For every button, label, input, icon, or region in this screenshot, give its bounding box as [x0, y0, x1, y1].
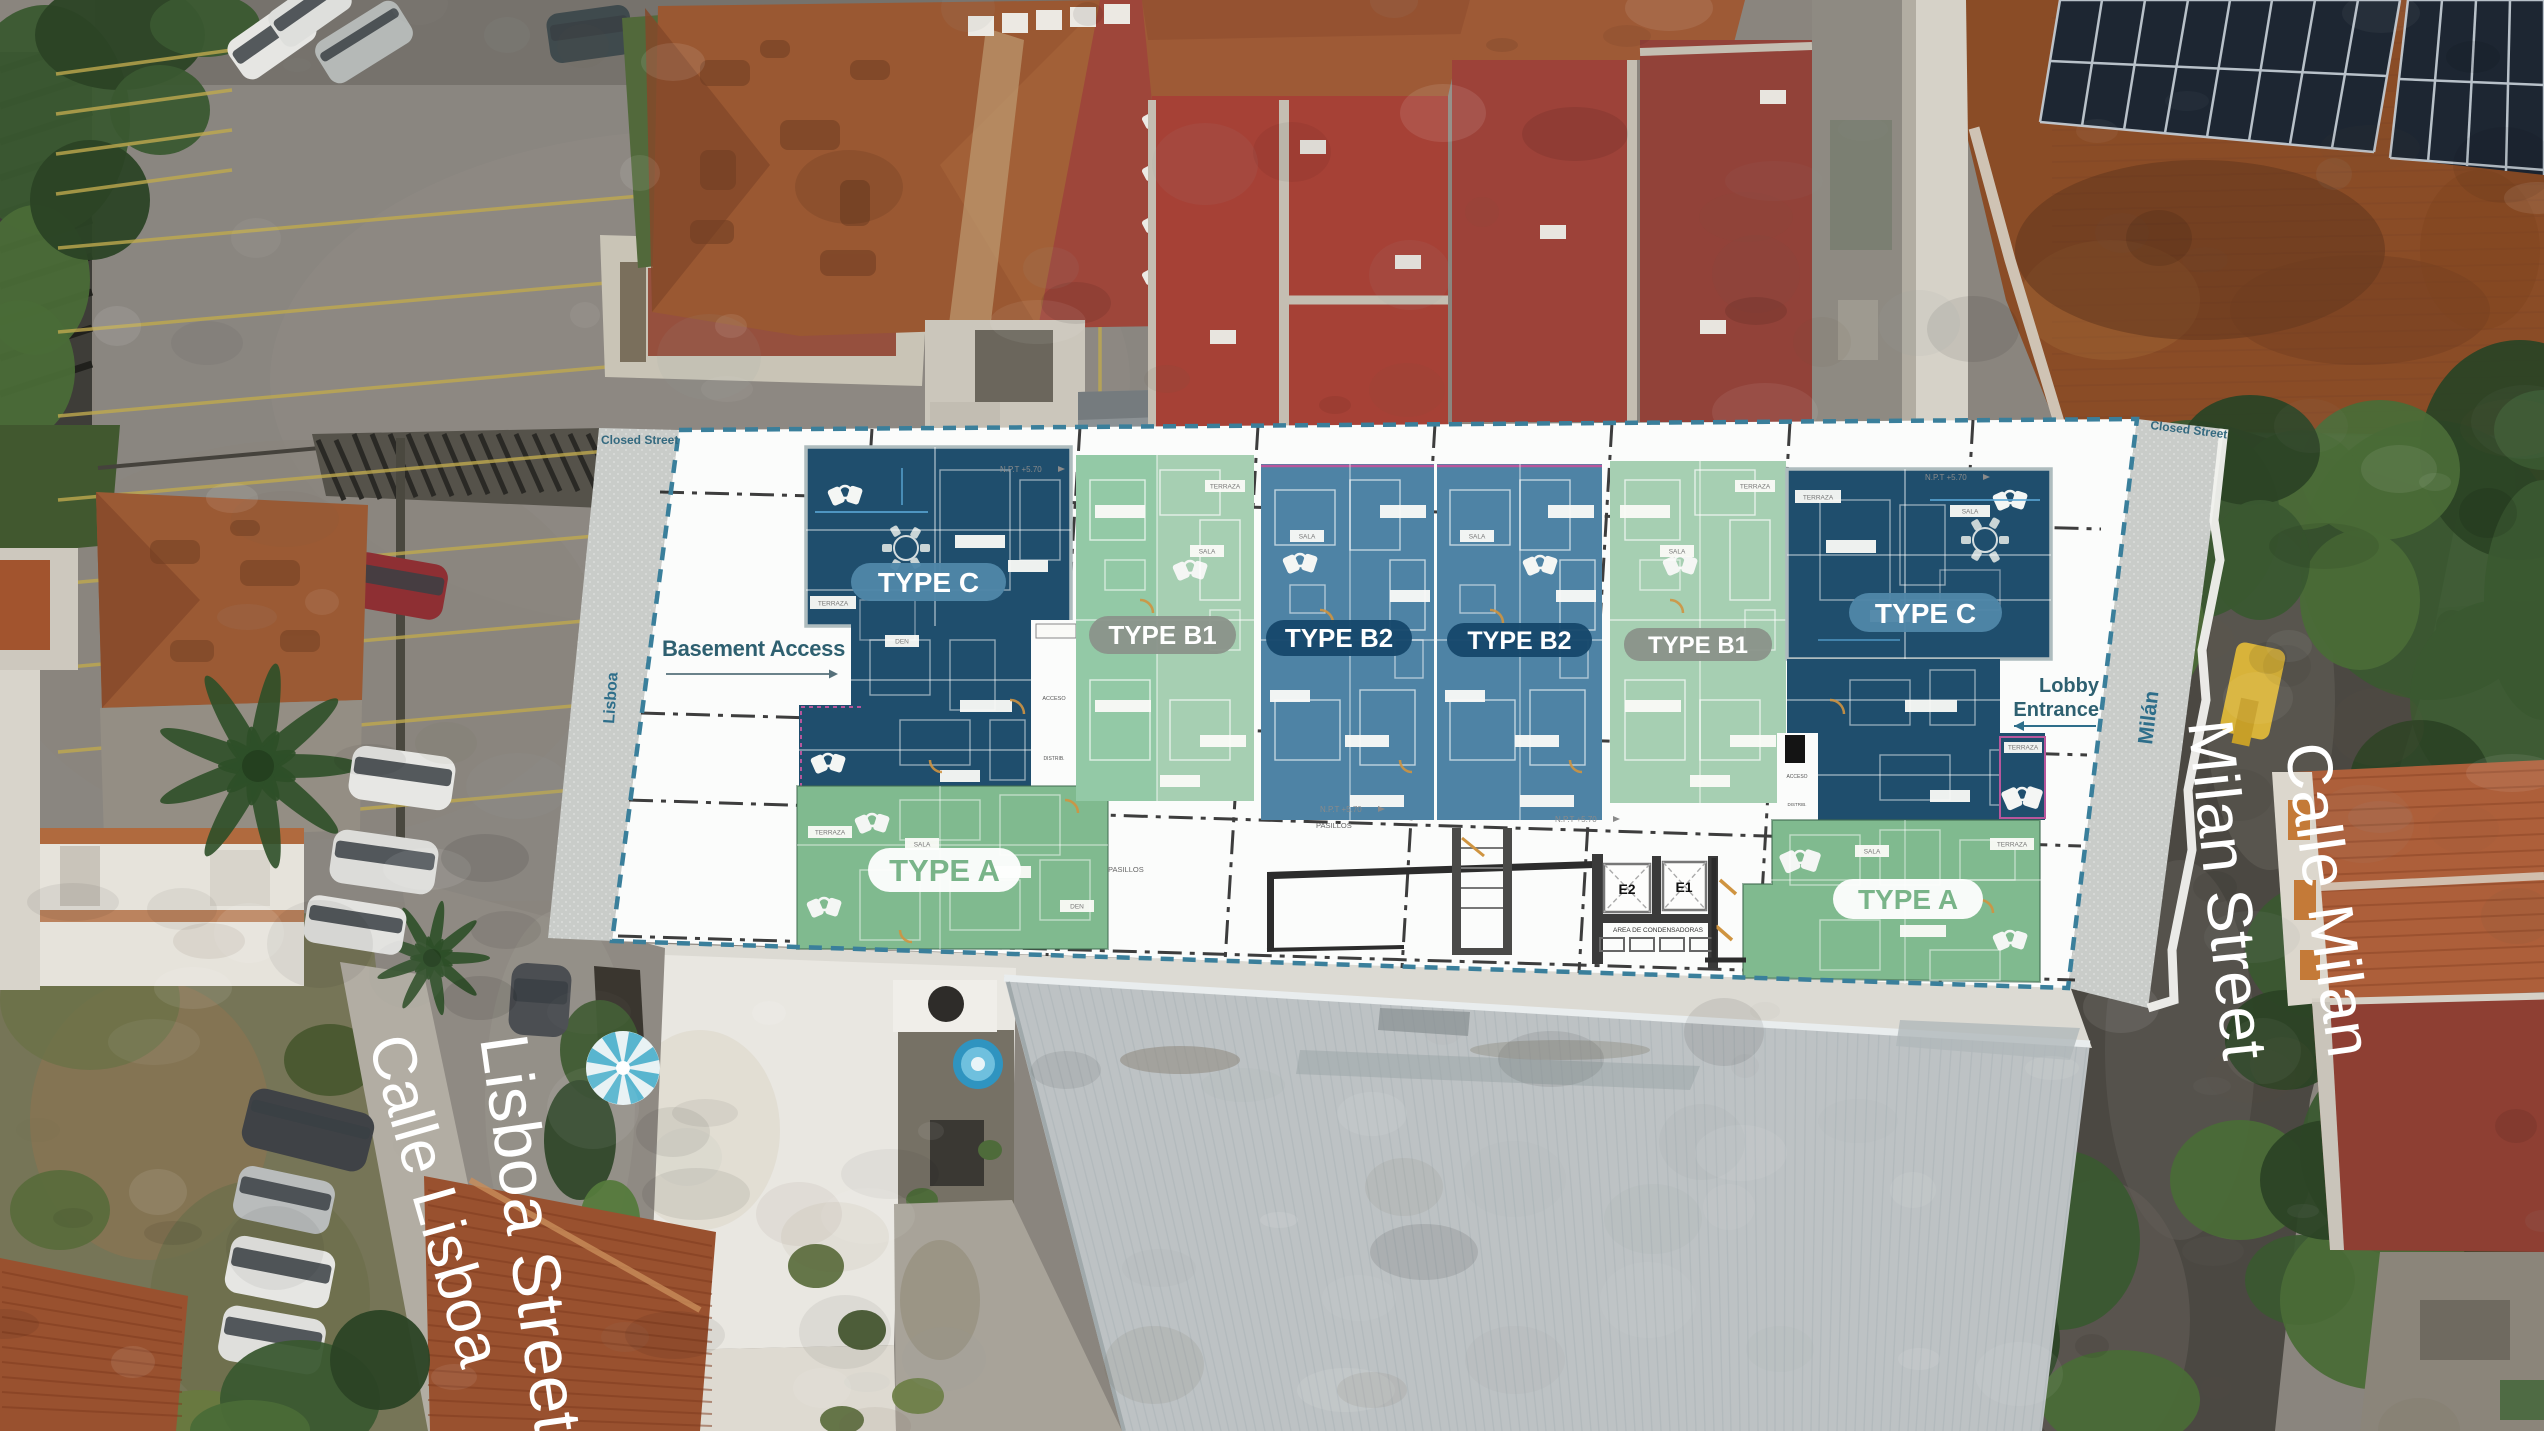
svg-text:TYPE A: TYPE A [889, 853, 1000, 888]
svg-text:AREA DE CONDENSADORAS: AREA DE CONDENSADORAS [1613, 927, 1704, 934]
svg-text:DISTRIB.: DISTRIB. [1043, 756, 1064, 762]
svg-text:TYPE B2: TYPE B2 [1467, 627, 1571, 655]
svg-text:E2: E2 [1618, 881, 1635, 897]
svg-text:N.P.T +5.70: N.P.T +5.70 [1925, 473, 1967, 482]
svg-text:TERRAZA: TERRAZA [1740, 484, 1771, 491]
svg-text:Basement Access: Basement Access [662, 636, 845, 661]
svg-text:E1: E1 [1675, 879, 1692, 895]
svg-text:N.P.T +5.70: N.P.T +5.70 [1555, 815, 1597, 824]
svg-text:ACCESO: ACCESO [1042, 696, 1066, 702]
svg-text:PASILLOS: PASILLOS [1108, 865, 1144, 874]
svg-text:TERRAZA: TERRAZA [1210, 484, 1241, 491]
svg-text:SALA: SALA [1669, 549, 1686, 556]
svg-text:SALA: SALA [1469, 534, 1486, 541]
svg-text:TYPE C: TYPE C [878, 567, 979, 598]
svg-text:Entrance: Entrance [2013, 699, 2099, 721]
svg-text:Lobby: Lobby [2039, 675, 2100, 697]
svg-text:ACCESO: ACCESO [1786, 774, 1807, 780]
svg-text:TERRAZA: TERRAZA [1997, 842, 2028, 849]
svg-text:SALA: SALA [1299, 534, 1316, 541]
svg-text:Lisboa: Lisboa [601, 672, 622, 725]
svg-text:Closed Street: Closed Street [601, 433, 678, 447]
svg-text:DISTRIB.: DISTRIB. [1787, 802, 1806, 807]
svg-text:PASILLOS: PASILLOS [1316, 821, 1352, 830]
svg-text:N.P.T +5.70: N.P.T +5.70 [1320, 805, 1362, 814]
svg-text:TERRAZA: TERRAZA [818, 601, 849, 608]
svg-text:DEN: DEN [895, 639, 909, 646]
svg-text:SALA: SALA [1199, 549, 1216, 556]
svg-text:TERRAZA: TERRAZA [815, 830, 846, 837]
svg-text:SALA: SALA [1864, 849, 1881, 856]
svg-text:TERRAZA: TERRAZA [1803, 495, 1834, 502]
svg-text:TYPE A: TYPE A [1858, 884, 1958, 915]
svg-text:TYPE C: TYPE C [1875, 598, 1976, 629]
svg-text:TYPE B2: TYPE B2 [1285, 623, 1393, 653]
svg-text:SALA: SALA [914, 842, 931, 849]
svg-text:SALA: SALA [1962, 509, 1979, 516]
svg-text:TYPE B1: TYPE B1 [1648, 632, 1748, 659]
svg-text:N.P.T +5.70: N.P.T +5.70 [1000, 465, 1042, 474]
svg-text:TYPE B1: TYPE B1 [1108, 620, 1216, 650]
svg-text:TERRAZA: TERRAZA [2008, 745, 2039, 752]
svg-text:DEN: DEN [1070, 904, 1084, 911]
